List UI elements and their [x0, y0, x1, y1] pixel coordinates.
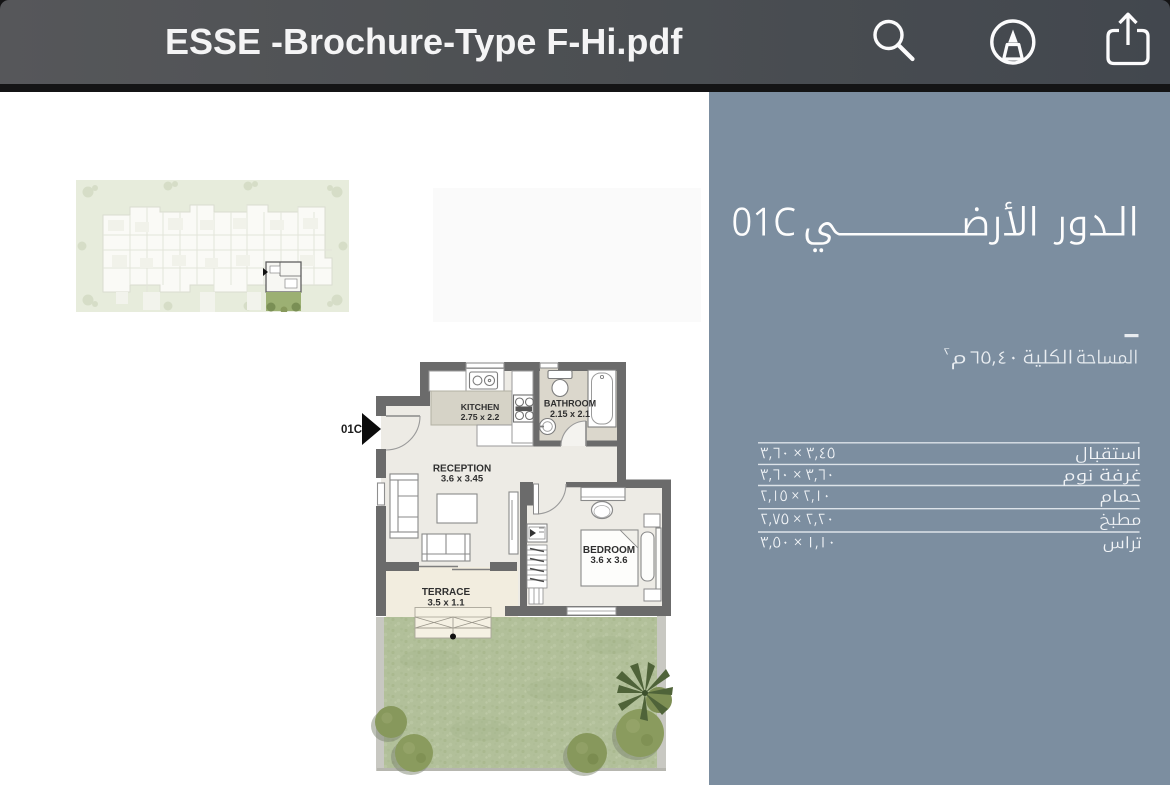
svg-text:2.15 x 2.1: 2.15 x 2.1: [550, 409, 590, 419]
svg-text:2.75 x 2.2: 2.75 x 2.2: [461, 412, 500, 422]
svg-text:3.6 x 3.6: 3.6 x 3.6: [591, 555, 628, 566]
svg-text:KITCHEN: KITCHEN: [461, 402, 500, 412]
svg-text:BATHROOM: BATHROOM: [544, 399, 596, 409]
svg-text:01C: 01C: [341, 424, 362, 436]
svg-text:3.6 x 3.45: 3.6 x 3.45: [441, 474, 484, 485]
svg-text:TERRACE: TERRACE: [422, 587, 471, 598]
svg-text:3.5 x 1.1: 3.5 x 1.1: [428, 598, 466, 609]
